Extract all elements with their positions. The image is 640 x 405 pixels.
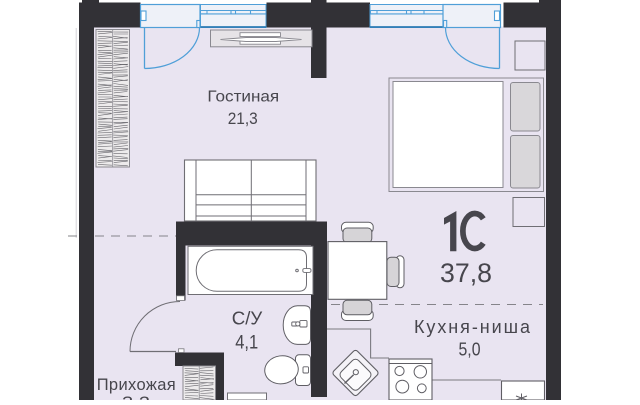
svg-text:4,1: 4,1	[235, 333, 258, 354]
svg-text:Гостиная: Гостиная	[207, 88, 279, 105]
svg-text:5,0: 5,0	[459, 340, 481, 360]
svg-text:21,3: 21,3	[228, 109, 258, 128]
svg-text:Прихожая: Прихожая	[97, 376, 176, 394]
svg-text:Кухня-ниша: Кухня-ниша	[414, 317, 531, 337]
svg-text:37,8: 37,8	[440, 258, 492, 288]
svg-text:С/У: С/У	[232, 308, 263, 329]
svg-text:3,2: 3,2	[122, 394, 150, 400]
